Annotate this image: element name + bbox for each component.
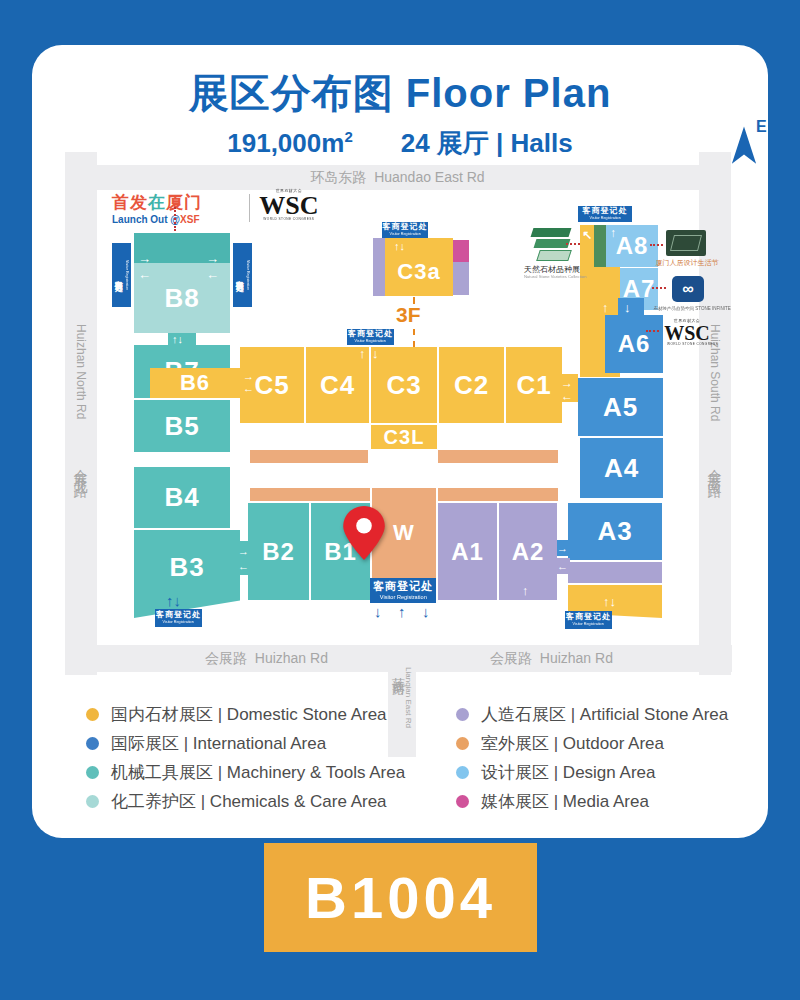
- hall-c1: C1: [506, 347, 562, 423]
- legend-dot: [86, 795, 99, 808]
- outdoor-strip-lower-left: [250, 488, 370, 501]
- hall-b4: B4: [134, 467, 230, 528]
- page-title: 展区分布图 Floor Plan: [0, 66, 800, 121]
- visitor-registration-b3: 客商登记处Visitor Registration: [155, 609, 202, 627]
- legend-dot: [456, 708, 469, 721]
- legend-item-media: 媒体展区 | Media Area: [456, 790, 649, 813]
- dash-stone-infinite: [652, 287, 666, 289]
- legend-dot: [86, 737, 99, 750]
- dash-natural-stone: [566, 243, 580, 245]
- stone-infinite-icon: ∞: [672, 276, 704, 302]
- compass-label: E: [756, 118, 767, 136]
- legend-dot: [456, 766, 469, 779]
- legend-item-artificial-stone: 人造石展区 | Artificial Stone Area: [456, 703, 728, 726]
- wsc-logo-top: 世界石材大会 WSC WORLD STONE CONGRESS: [257, 188, 321, 222]
- visitor-registration-a3: 客商登记处Visitor Registration: [565, 611, 612, 629]
- legend-dot: [86, 708, 99, 721]
- natural-stone-icon: [532, 228, 570, 261]
- hall-b5: B5: [134, 400, 230, 452]
- legend-item-chemicals-care: 化工养护区 | Chemicals & Care Area: [86, 790, 387, 813]
- outdoor-strip-upper-right: [438, 450, 558, 463]
- natural-stone-label: 天然石材品种展: [512, 264, 592, 275]
- hall-b6: B6: [150, 368, 240, 398]
- legend-item-design: 设计展区 | Design Area: [456, 761, 655, 784]
- road-huandao-east: 环岛东路 Huandao East Rd: [75, 165, 720, 190]
- booth-number-badge: B1004: [264, 843, 537, 952]
- design-week-label: 厦门人居设计生活节: [652, 258, 722, 268]
- hall-a3: A3: [568, 503, 662, 560]
- dash-design-week: [650, 244, 663, 246]
- stone-infinite-label: 石材跨产品趋势空间 STONE INFINITE: [654, 305, 723, 312]
- natural-stone-sublabel: Natural Stone Varieties Collection: [524, 275, 580, 279]
- hall-c3a-purple-left: [373, 238, 385, 296]
- hall-a6: A6: [605, 315, 663, 373]
- visitor-registration-b8-right: 客商登记处Visitor Registration: [233, 243, 252, 307]
- outdoor-strip-upper-left: [250, 450, 368, 463]
- legend-item-international: 国际展区 | International Area: [86, 732, 326, 755]
- hall-c3: C3: [371, 347, 437, 423]
- design-week-icon: [666, 230, 706, 256]
- hall-c2: C2: [439, 347, 504, 423]
- road-huizhan-north: Huizhan North Rd 会展北路: [65, 152, 97, 675]
- hall-b2: B2: [248, 503, 309, 600]
- visitor-registration-b8-left: 客商登记处Visitor Registration: [112, 243, 131, 307]
- visitor-registration-c3a: 客商登记处Visitor Registration: [382, 222, 428, 238]
- hall-a5: A5: [578, 378, 663, 436]
- legend-dot: [456, 795, 469, 808]
- wsc-logo-right: 世界石材大会 WSC WORLD STONE CONGRESS: [662, 318, 712, 347]
- hall-c3a-purple-right: [453, 262, 469, 295]
- legend-item-machinery-tools: 机械工具展区 | Machinery & Tools Area: [86, 761, 405, 784]
- hall-c3l: C3L: [371, 425, 437, 449]
- halls-count: 24 展厅 | Halls: [401, 128, 573, 158]
- hall-a8-green-strip: [594, 225, 606, 267]
- compass: E: [730, 116, 770, 170]
- legend-dot: [456, 737, 469, 750]
- location-pin-icon: [342, 506, 386, 560]
- legend-item-domestic-stone: 国内石材展区 | Domestic Stone Area: [86, 703, 387, 726]
- booth-number: B1004: [305, 864, 496, 931]
- dash-wsc: [646, 330, 659, 332]
- launch-logo-connector: [174, 207, 176, 231]
- legend-dot: [86, 766, 99, 779]
- visitor-registration-w: 客商登记处Visitor Registration: [370, 578, 436, 603]
- compass-arrow-icon: [730, 126, 758, 166]
- legend-item-outdoor: 室外展区 | Outdoor Area: [456, 732, 664, 755]
- outdoor-strip-lower-right: [438, 488, 558, 501]
- page-subtitle: 191,000m224 展厅 | Halls: [0, 126, 800, 161]
- logo-divider: [249, 194, 250, 222]
- road-lianqian-east: 莲前路 Lianqian East Rd: [388, 645, 416, 757]
- launch-out-logo: 首发在厦门 Launch Out @XSF: [112, 191, 202, 225]
- visitor-registration-a8: 客商登记处Visitor Registration: [578, 206, 632, 222]
- visitor-registration-c3: 客商登记处Visitor Registration: [347, 329, 394, 345]
- hall-a3-purple-strip: [568, 562, 662, 583]
- area-value: 191,000m2: [227, 128, 352, 158]
- floor-3f-label: 3F: [396, 303, 421, 327]
- c3a-3f-dash-bottom: [413, 329, 415, 347]
- hall-a1: A1: [438, 503, 497, 600]
- hall-a4: A4: [580, 438, 663, 498]
- hall-c3a-media-block: [453, 240, 469, 262]
